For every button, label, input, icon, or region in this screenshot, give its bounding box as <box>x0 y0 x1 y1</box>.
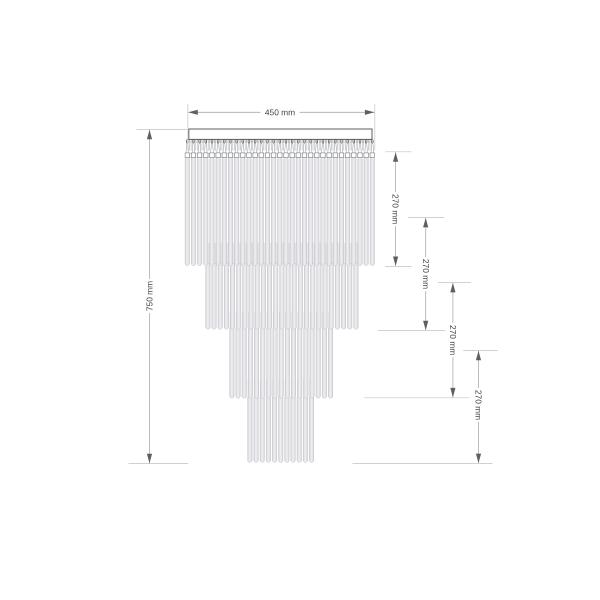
svg-text:750 mm: 750 mm <box>144 281 154 311</box>
svg-text:450 mm: 450 mm <box>265 107 295 117</box>
svg-text:270 mm: 270 mm <box>421 259 431 289</box>
svg-text:270 mm: 270 mm <box>448 325 458 355</box>
svg-text:270 mm: 270 mm <box>391 194 401 224</box>
svg-text:270 mm: 270 mm <box>474 390 484 420</box>
